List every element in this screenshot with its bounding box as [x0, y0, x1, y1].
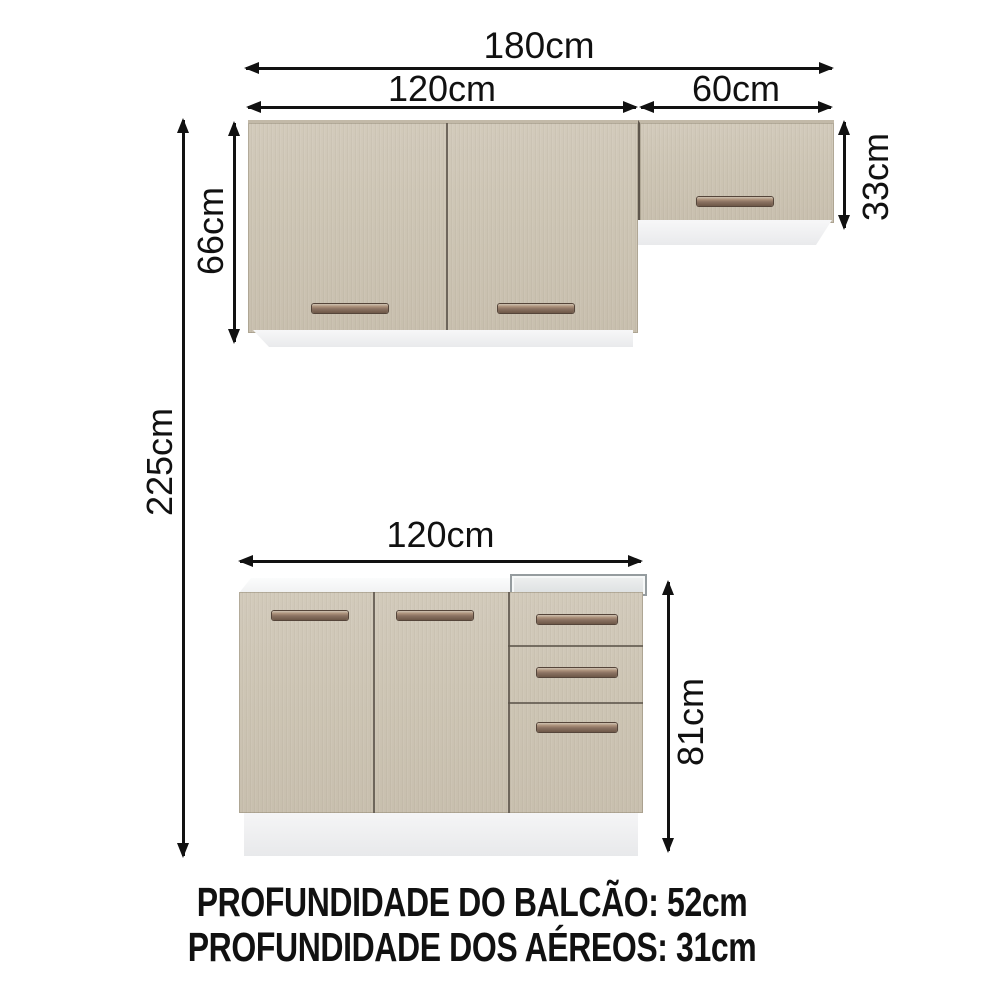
kitchen-dimension-diagram: 180cm 120cm 60cm 225cm 66cm 33cm 120cm	[0, 0, 1000, 1000]
upper-right-width-label: 60cm	[641, 70, 831, 108]
upper-left-width-label: 120cm	[248, 70, 636, 108]
drawer1-handle	[537, 615, 617, 624]
upper-cabinet-right-door	[638, 120, 834, 223]
countertop	[239, 578, 512, 593]
upper-cabinet-left-doors	[248, 120, 638, 333]
upper-left-door2-handle	[498, 304, 574, 313]
total-width-label: 180cm	[246, 27, 832, 66]
drawer3-handle	[537, 723, 617, 732]
kick-panel	[244, 813, 638, 856]
upper-left-width-arrow	[248, 106, 636, 109]
aerial-height-arrow	[843, 122, 846, 228]
base-height-arrow	[667, 582, 670, 851]
upper-left-cabinet-bottom	[253, 330, 633, 347]
base-width-label: 120cm	[240, 516, 641, 554]
total-height-label: 225cm	[139, 408, 181, 516]
drawer-gap-2	[508, 702, 643, 704]
total-height-arrow	[182, 120, 185, 856]
base-cabinet-front	[239, 592, 643, 813]
base-door1-handle	[272, 611, 348, 620]
drawer-gap-1	[508, 645, 643, 647]
upper-right-door-handle	[697, 197, 773, 206]
aerial-height-label: 33cm	[855, 133, 897, 221]
aerial-depth-note: PROFUNDIDADE DOS AÉREOS: 31cm	[188, 924, 757, 971]
base-width-arrow	[240, 560, 641, 563]
base-door-gap-1	[373, 592, 375, 813]
base-door2-handle	[397, 611, 473, 620]
drawer2-handle	[537, 668, 617, 677]
upper-height-label: 66cm	[190, 187, 232, 275]
upper-left-door-gap	[446, 123, 448, 333]
upper-right-cabinet-bottom	[638, 220, 832, 245]
counter-depth-note: PROFUNDIDADE DO BALCÃO: 52cm	[197, 879, 748, 926]
upper-right-width-arrow	[641, 106, 831, 109]
base-height-label: 81cm	[670, 678, 712, 766]
upper-height-arrow	[233, 123, 236, 342]
upper-left-door1-handle	[312, 304, 388, 313]
